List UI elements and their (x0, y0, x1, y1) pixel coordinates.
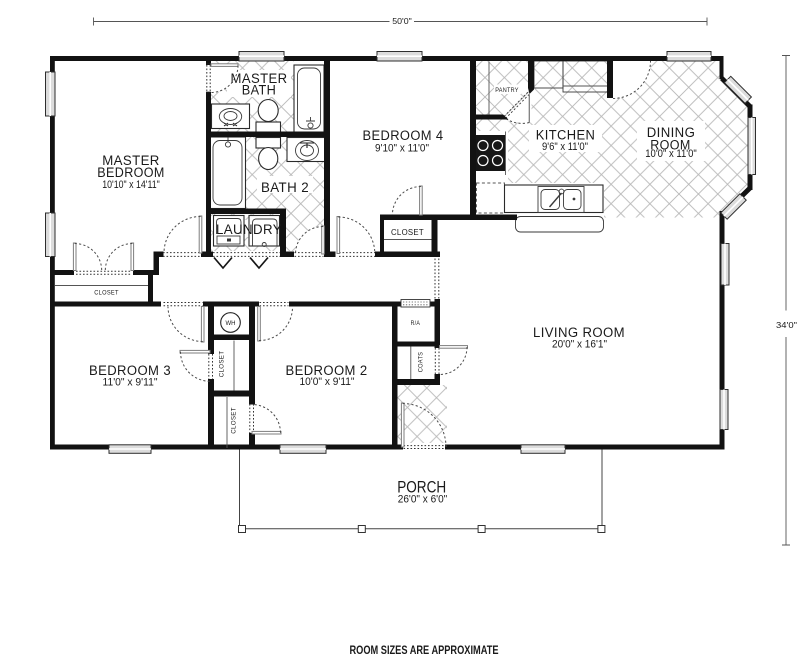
svg-text:10'10" x 14'11": 10'10" x 14'11" (102, 179, 160, 191)
svg-text:10'0" x 9'11": 10'0" x 9'11" (300, 376, 355, 388)
svg-text:ROOM SIZES ARE APPROXIMATE: ROOM SIZES ARE APPROXIMATE (350, 643, 499, 657)
svg-text:BATH: BATH (242, 83, 277, 98)
svg-text:34'0": 34'0" (776, 320, 797, 330)
svg-text:26'0" x 6'0": 26'0" x 6'0" (398, 493, 448, 505)
svg-text:BEDROOM 4: BEDROOM 4 (363, 128, 444, 143)
svg-text:11'0" x 9'11": 11'0" x 9'11" (103, 377, 158, 389)
svg-text:9'6" x 11'0": 9'6" x 11'0" (542, 141, 588, 153)
svg-text:CLOSET: CLOSET (94, 290, 119, 297)
svg-text:WH: WH (226, 321, 236, 327)
svg-text:9'10" x 11'0": 9'10" x 11'0" (375, 143, 429, 155)
svg-text:LAUNDRY: LAUNDRY (216, 222, 282, 237)
svg-text:CLOSET: CLOSET (219, 351, 226, 378)
svg-text:BEDROOM: BEDROOM (97, 165, 165, 180)
svg-text:PANTRY: PANTRY (495, 87, 519, 94)
svg-text:10'0" x 11'0": 10'0" x 11'0" (645, 148, 697, 160)
svg-text:CLOSET: CLOSET (391, 228, 424, 237)
svg-text:BATH 2: BATH 2 (261, 180, 309, 195)
svg-text:COATS: COATS (418, 351, 425, 372)
svg-text:CLOSET: CLOSET (231, 407, 238, 434)
svg-text:20'0" x 16'1": 20'0" x 16'1" (552, 339, 607, 351)
svg-text:R/A: R/A (411, 320, 421, 327)
svg-text:50'0": 50'0" (392, 16, 412, 26)
